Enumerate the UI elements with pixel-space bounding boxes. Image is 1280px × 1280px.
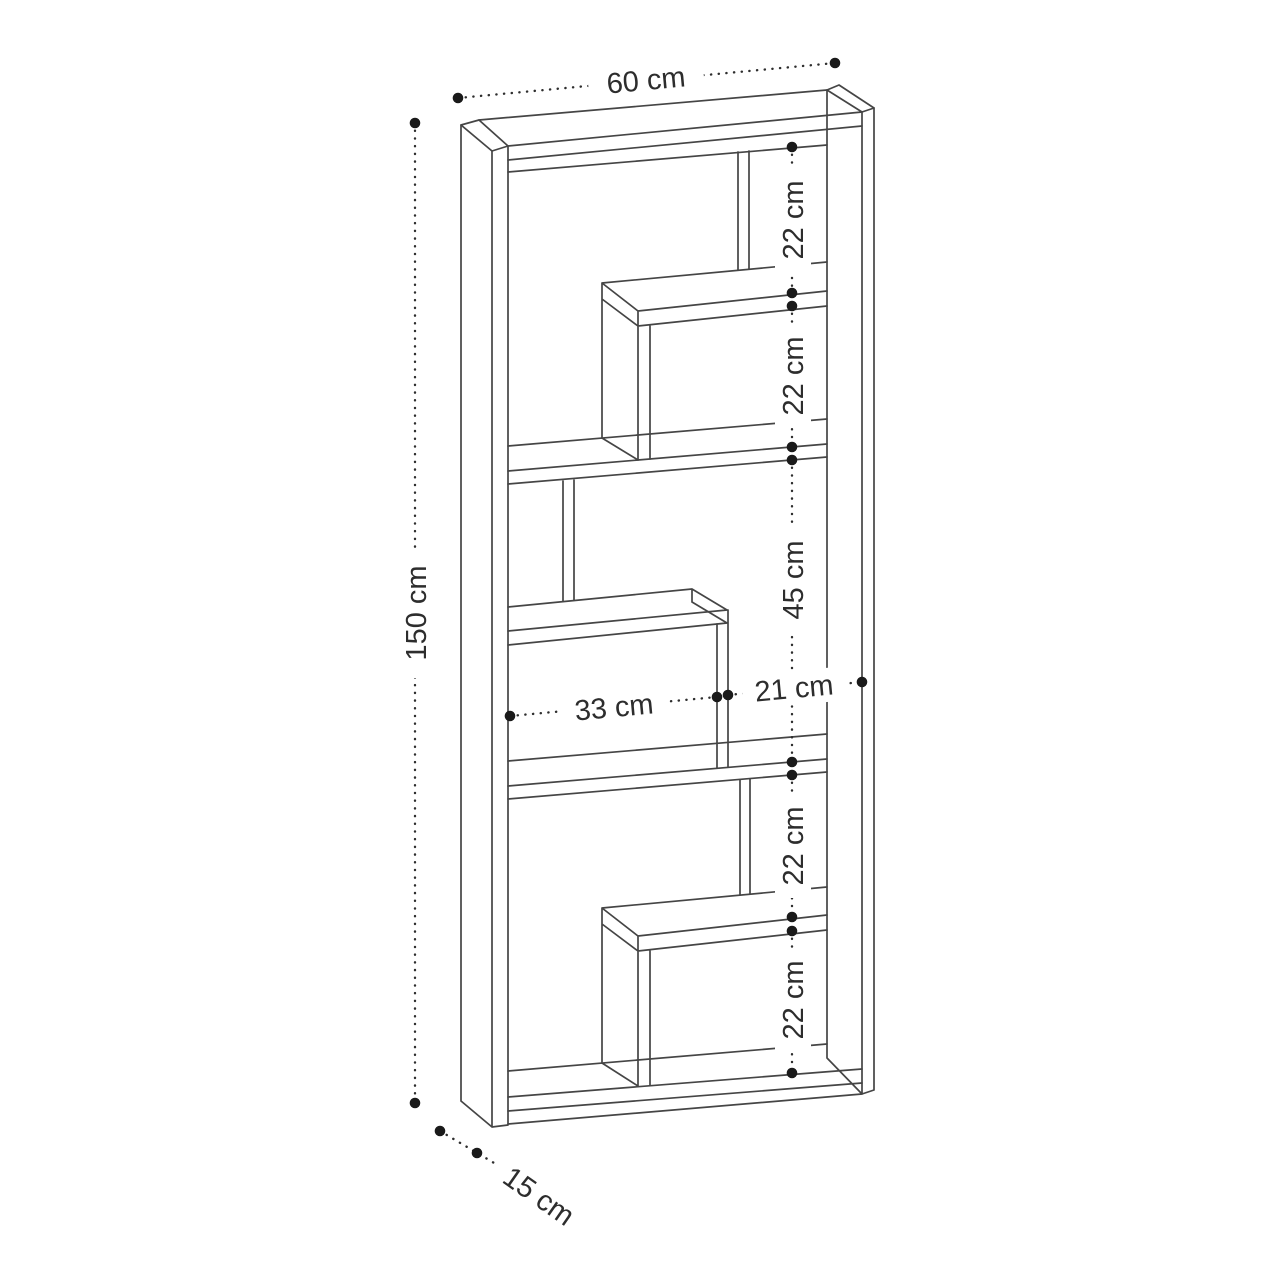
dim-dot — [857, 677, 868, 688]
dim-section-2: 22 cm — [775, 324, 811, 428]
divider-mid-left — [563, 480, 574, 601]
dim-section-3-label: 45 cm — [778, 541, 810, 620]
dim-dot — [472, 1148, 483, 1159]
left-panel-edges — [461, 125, 508, 1127]
dim-depth: 15 cm — [486, 1151, 592, 1240]
dim-dot — [712, 692, 723, 703]
dim-inner-left: 33 cm — [561, 685, 668, 728]
diagram-page: 60 cm 150 cm 15 cm 22 cm 22 cm 45 cm 22 … — [0, 0, 1280, 1280]
bottom-board — [508, 1044, 862, 1124]
dim-dot — [787, 455, 798, 466]
shelf-lower-full-edges — [508, 734, 827, 799]
dim-dot — [723, 690, 734, 701]
bookcase-drawing — [461, 85, 874, 1127]
dim-dot — [787, 926, 798, 937]
top-board — [479, 90, 862, 172]
dim-dot — [787, 770, 798, 781]
dim-section-4-label: 22 cm — [778, 807, 810, 886]
dim-inner-left-label: 33 cm — [573, 688, 655, 727]
dim-dot — [787, 1068, 798, 1079]
right-panel-top-face — [827, 85, 874, 112]
dim-inner-right: 21 cm — [741, 666, 848, 709]
dim-dot — [830, 58, 841, 69]
dimension-labels: 60 cm 150 cm 15 cm 22 cm 22 cm 45 cm 22 … — [398, 57, 847, 1241]
left-panel-top-face — [461, 120, 508, 151]
dim-dot — [787, 142, 798, 153]
divider-mid-right — [717, 610, 728, 768]
dim-dot — [435, 1126, 446, 1137]
dim-section-5-label: 22 cm — [778, 961, 810, 1040]
dim-section-5: 22 cm — [775, 948, 811, 1052]
shelf-middle-left — [508, 589, 728, 768]
dim-section-3: 45 cm — [775, 528, 811, 632]
dim-section-1: 22 cm — [775, 168, 811, 272]
shelf-middle-left-edges — [508, 589, 727, 645]
dim-dot — [787, 912, 798, 923]
dim-dot — [787, 442, 798, 453]
divider-lower-right — [740, 779, 750, 895]
dim-dot — [787, 757, 798, 768]
right-panel-edges — [827, 90, 874, 1094]
dim-section-2-label: 22 cm — [778, 337, 810, 416]
dim-dot — [505, 711, 516, 722]
top-board-edges — [479, 90, 862, 172]
dim-section-1-label: 22 cm — [778, 181, 810, 260]
dim-height: 150 cm — [398, 548, 434, 678]
bottom-board-edges — [508, 1044, 862, 1124]
dim-dot — [787, 288, 798, 299]
dim-dot — [410, 1098, 421, 1109]
dim-dot — [787, 301, 798, 312]
dim-inner-right-label: 21 cm — [753, 669, 835, 708]
bookcase-dimension-diagram: 60 cm 150 cm 15 cm 22 cm 22 cm 45 cm 22 … — [0, 0, 1280, 1280]
left-side-panel — [461, 120, 508, 1127]
right-side-panel — [827, 85, 874, 1094]
dim-dot — [410, 118, 421, 129]
shelf-upper-full-edges — [508, 419, 827, 484]
dim-section-4: 22 cm — [775, 794, 811, 898]
divider-top-right — [738, 151, 749, 270]
dim-height-label: 150 cm — [401, 565, 433, 660]
dim-width: 60 cm — [587, 57, 706, 104]
dim-dot — [453, 93, 464, 104]
